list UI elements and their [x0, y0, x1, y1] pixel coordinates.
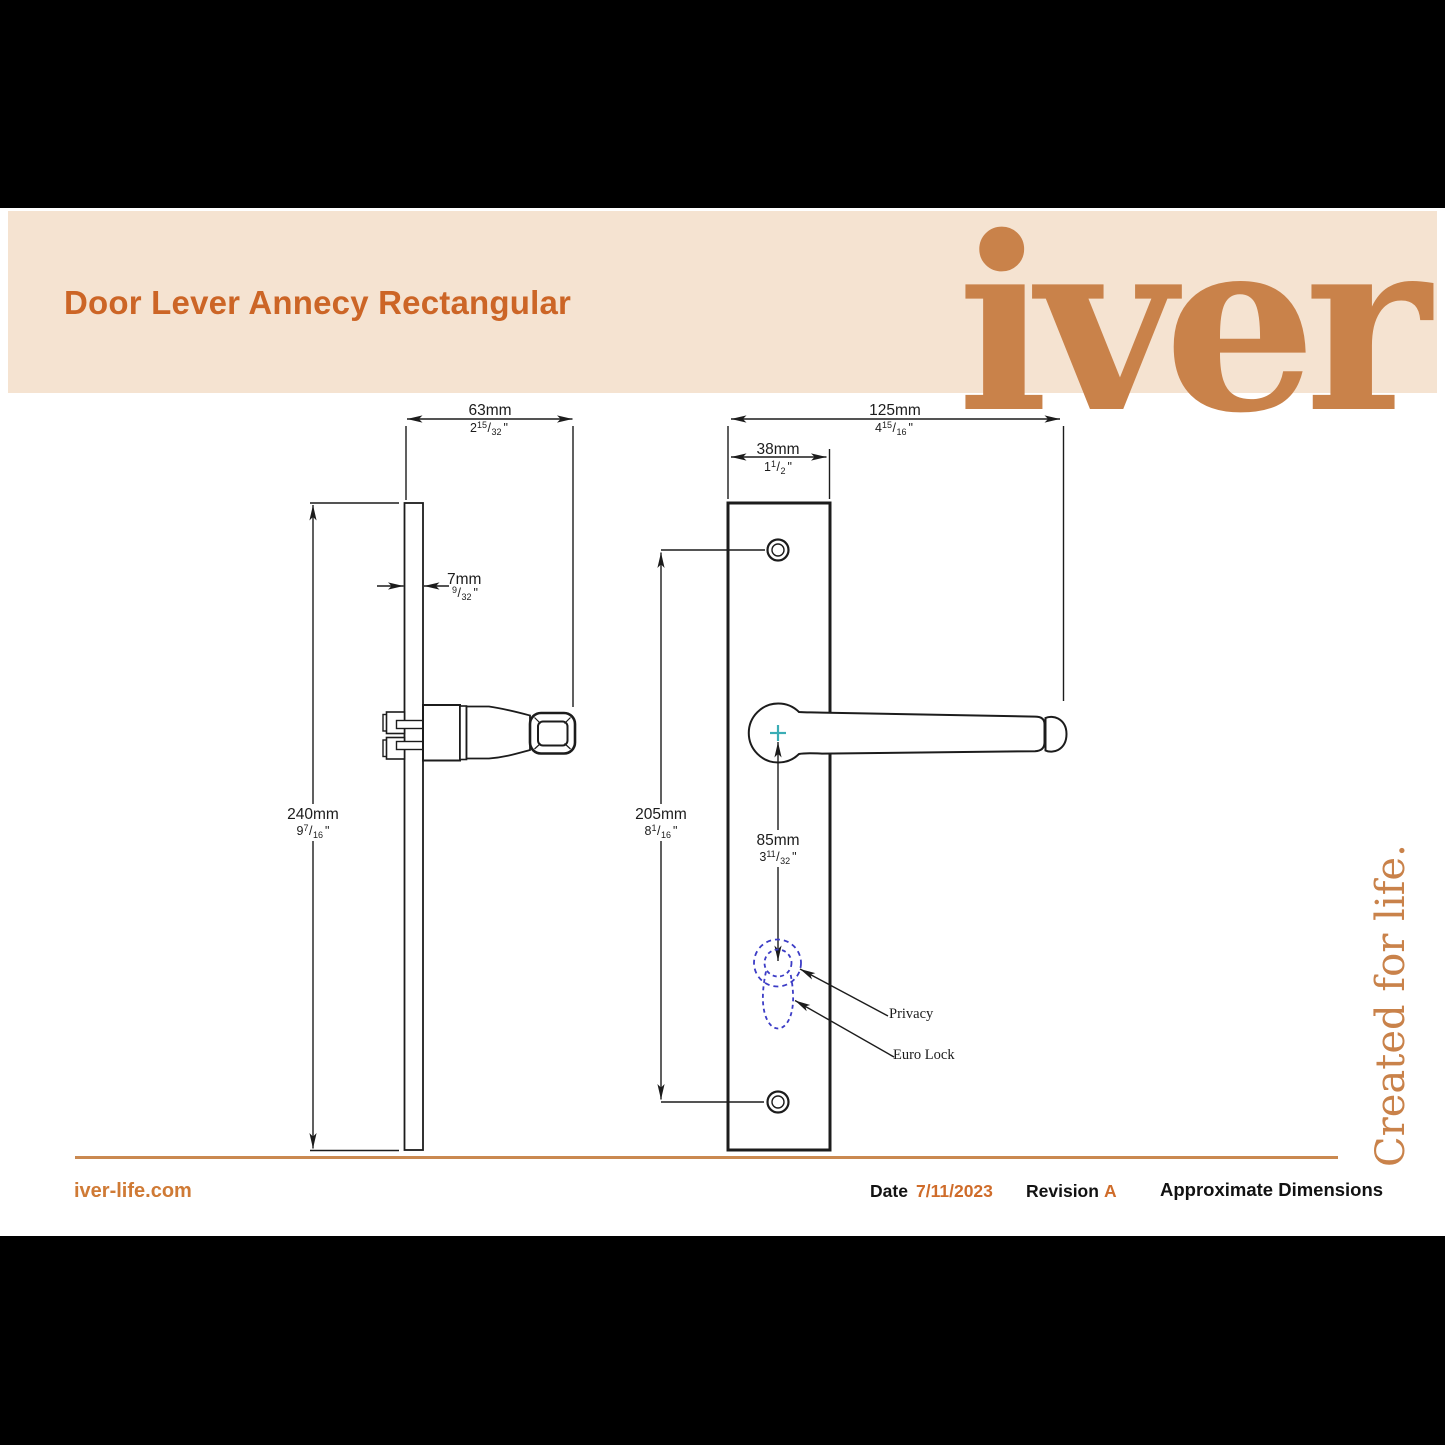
- lever-end-cap: [1046, 717, 1067, 752]
- euro-lock-callout: Euro Lock: [893, 1047, 955, 1064]
- date-value: 7/11/2023: [916, 1181, 993, 1202]
- lug-slot-bottom: [397, 742, 424, 750]
- dim-85mm-label: 85mm 311/32": [750, 830, 805, 867]
- hub-step: [460, 706, 467, 760]
- dim-7mm-imperial: 9/32": [452, 586, 478, 600]
- dim-85mm-metric: 85mm: [756, 831, 799, 850]
- footer-rule: [75, 1156, 1338, 1159]
- lever-hub: [423, 705, 460, 761]
- side-view: [383, 503, 575, 1150]
- technical-drawing: [0, 0, 1445, 1445]
- lever-neck: [467, 707, 531, 759]
- side-plate: [405, 503, 424, 1150]
- dim-205mm-label: 205mm 81/16": [629, 804, 693, 841]
- dim-205mm-metric: 205mm: [635, 805, 687, 824]
- dim-240mm-label: 240mm 97/16": [281, 804, 345, 841]
- lever-end-inner: [538, 722, 568, 746]
- dim-38mm-imperial: 11/2": [764, 460, 792, 474]
- dimensions-note: Approximate Dimensions: [1160, 1179, 1383, 1201]
- revision-value: A: [1104, 1181, 1117, 1202]
- dim-38mm-metric: 38mm: [756, 441, 799, 459]
- backplate: [728, 503, 830, 1150]
- letterbox-bottom: [0, 1236, 1445, 1445]
- dim-125mm-metric: 125mm: [869, 402, 921, 420]
- privacy-callout: Privacy: [889, 1006, 933, 1023]
- dim-85mm-imperial: 311/32": [756, 850, 799, 866]
- dim-63mm-imperial: 215/32": [470, 421, 508, 435]
- dim-63mm-metric: 63mm: [468, 402, 511, 420]
- screw-hole-bottom-inner: [772, 1096, 784, 1108]
- date-label: Date: [870, 1181, 908, 1202]
- lever-handle: [749, 704, 1045, 763]
- website-link[interactable]: iver-life.com: [74, 1180, 192, 1203]
- revision-label: Revision: [1026, 1181, 1099, 1202]
- dim-240mm-imperial: 97/16": [287, 824, 339, 840]
- dim-240mm-metric: 240mm: [287, 805, 339, 824]
- lug-slot-top: [397, 721, 424, 729]
- letterbox-top: [0, 0, 1445, 208]
- screw-hole-top-inner: [772, 544, 784, 556]
- spec-sheet: Door Lever Annecy Rectangular iver Creat…: [0, 0, 1445, 1445]
- dim-125mm-imperial: 415/16": [875, 421, 913, 435]
- dim-205mm-imperial: 81/16": [635, 824, 687, 840]
